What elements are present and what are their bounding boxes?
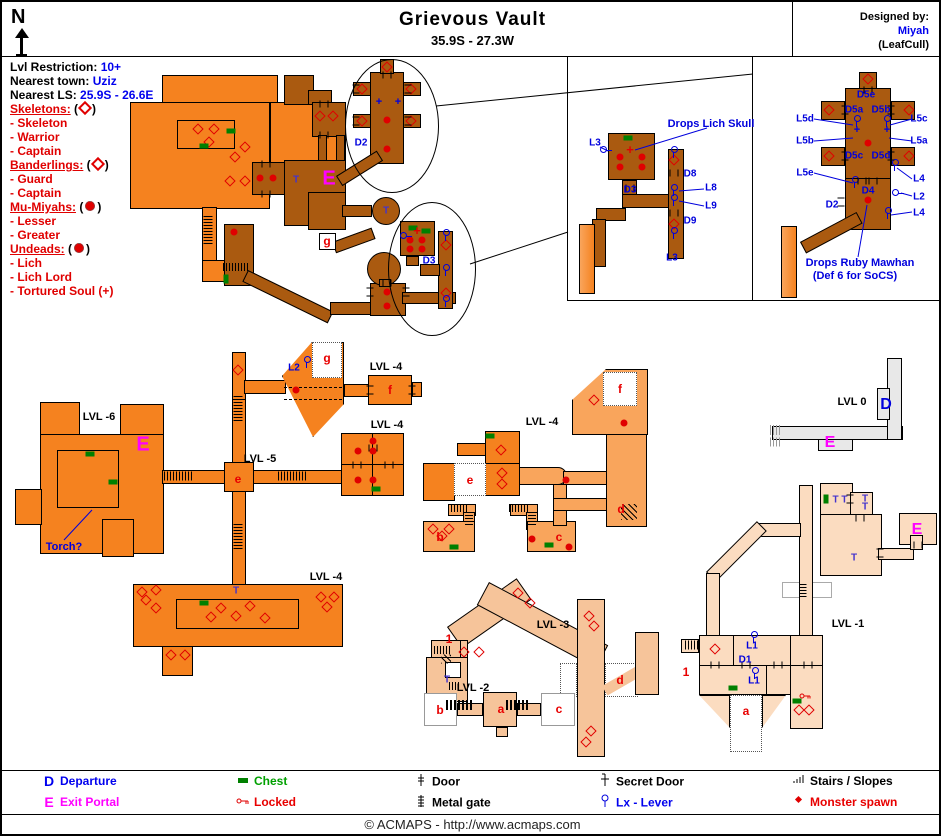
map-label: L5e xyxy=(796,168,813,179)
departure-symbol: D xyxy=(38,773,60,789)
map-label: L1 xyxy=(748,676,760,687)
lever-icon xyxy=(442,264,450,276)
map-label: L4 xyxy=(913,174,925,185)
map-label: D1 xyxy=(739,655,752,666)
map-label: T T xyxy=(833,495,848,506)
chest-icon xyxy=(824,495,829,504)
monster-spawn-icon xyxy=(407,246,414,253)
secret-door-icon xyxy=(594,773,616,790)
lever-cross-icon: + xyxy=(376,98,382,106)
map-label: b xyxy=(436,530,443,544)
map-label: E xyxy=(912,521,923,539)
stairs-icon xyxy=(528,511,536,525)
stairs-icon xyxy=(685,641,699,650)
slope-icon xyxy=(770,438,782,447)
lever-icon xyxy=(600,146,612,154)
legend-item-locked: Locked xyxy=(232,794,296,810)
map-label: E xyxy=(136,434,149,457)
legend-item-departure: DDeparture xyxy=(38,773,117,789)
monster-spawn-icon xyxy=(529,536,536,543)
chest-icon xyxy=(109,480,118,485)
map-label: D9 xyxy=(684,216,697,227)
monster-member: - Lich xyxy=(10,256,175,270)
lever-cross-icon: + xyxy=(854,126,860,134)
lever-icon xyxy=(670,227,678,239)
door-icon xyxy=(877,549,884,558)
map-label: D2 xyxy=(355,138,368,149)
chest-icon xyxy=(200,144,209,149)
monster-spawn-icon xyxy=(566,544,573,551)
monster-legend: Skeletons: ()- Skeleton- Warrior- Captai… xyxy=(10,102,175,298)
slope-icon xyxy=(441,655,451,664)
chest-icon xyxy=(729,686,738,691)
legend-item-monster-spawn: Monster spawn xyxy=(788,794,897,810)
map-label: D5c xyxy=(845,151,863,162)
monster-group-heading: Undeads: () xyxy=(10,242,175,256)
door-icon xyxy=(858,178,867,185)
map-label: D5a xyxy=(845,105,863,116)
map-label: d xyxy=(617,502,624,516)
monster-member: - Lesser xyxy=(10,214,175,228)
map-label: D5e xyxy=(857,90,875,101)
legend-label: Chest xyxy=(254,774,287,788)
monster-spawn-icon xyxy=(231,229,238,236)
map-label: L3 xyxy=(666,253,678,264)
stairs-icon xyxy=(509,504,529,512)
lever-icon xyxy=(892,189,904,197)
monster-spawn-icon xyxy=(384,303,391,310)
map-label: L5c xyxy=(910,114,927,125)
chest-icon xyxy=(486,434,495,439)
nearest-ls-row: Nearest LS: 25.9S - 26.6E xyxy=(10,88,175,102)
monster-spawn-icon xyxy=(384,117,391,124)
monster-spawn-icon xyxy=(617,154,624,161)
map-label: f xyxy=(388,383,392,397)
monster-spawn-icon xyxy=(293,387,300,394)
legend-item-secret-door: Secret Door xyxy=(594,773,684,789)
map-label: Drops Lich Skull xyxy=(668,118,755,130)
monster-member: - Captain xyxy=(10,186,175,200)
door-icon xyxy=(353,85,360,94)
monster-spawn-icon xyxy=(384,146,391,153)
door-icon xyxy=(385,462,394,469)
monster-spawn-icon xyxy=(419,246,426,253)
lever-icon xyxy=(303,356,311,368)
chest-icon xyxy=(232,774,254,788)
map-label: D5b xyxy=(872,105,891,116)
map-label: c xyxy=(556,702,563,716)
monster-spawn-icon xyxy=(617,164,624,171)
lever-icon xyxy=(442,295,450,307)
door-icon xyxy=(914,542,923,549)
map-page: N Grievous Vault 35.9S - 27.3W Designed … xyxy=(0,0,941,836)
door-icon xyxy=(262,161,271,168)
legend-label: Locked xyxy=(254,795,296,809)
monster-member: - Skeleton xyxy=(10,116,175,130)
door-icon xyxy=(856,515,865,522)
metal-gate-icon xyxy=(506,700,530,710)
door-icon xyxy=(405,85,412,94)
map-label: f xyxy=(618,382,622,396)
door-icon xyxy=(320,132,329,139)
door-icon xyxy=(353,117,360,126)
legend-item-door: Door xyxy=(410,773,460,789)
nearest-town-row: Nearest town: Uziz xyxy=(10,74,175,88)
monster-spawn-icon xyxy=(370,477,377,484)
chest-icon xyxy=(200,601,209,606)
map-label: LVL -1 xyxy=(832,618,865,630)
door-icon xyxy=(869,178,878,185)
map-label: 1 xyxy=(683,665,690,679)
map-label: LVL -4 xyxy=(310,571,343,583)
map-label: D4 xyxy=(862,186,875,197)
locked-icon xyxy=(799,687,811,694)
map-label: L9 xyxy=(705,201,717,212)
monster-spawn-icon xyxy=(355,477,362,484)
stairs-icon xyxy=(465,511,473,525)
chest-icon xyxy=(422,229,431,234)
map-label: D2 xyxy=(826,200,839,211)
legend-item-exit-portal: EExit Portal xyxy=(38,794,119,810)
monster-member: - Lich Lord xyxy=(10,270,175,284)
skeleton-spawn-icon xyxy=(91,157,105,171)
stairs-icon xyxy=(223,263,249,271)
monster-group-heading: Skeletons: () xyxy=(10,102,175,116)
lever-icon xyxy=(883,115,891,127)
legend-label: Stairs / Slopes xyxy=(810,774,893,788)
monster-spawn-icon xyxy=(788,794,810,809)
legend-item-stairs: Stairs / Slopes xyxy=(788,773,893,789)
map-label: T xyxy=(383,206,389,217)
chest-icon xyxy=(624,136,633,141)
tortured-soul-icon: + xyxy=(626,146,634,154)
map-label: LVL -4 xyxy=(526,416,559,428)
lever-icon xyxy=(884,207,892,219)
map-label: 1 xyxy=(446,632,453,646)
map-label: E xyxy=(322,168,335,191)
monster-group-heading: Mu-Miyahs: () xyxy=(10,200,175,214)
door-icon xyxy=(774,662,783,669)
stairs-icon xyxy=(164,472,192,481)
map-label: LVL -3 xyxy=(537,619,570,631)
map-label: T xyxy=(233,586,239,597)
stairs-icon xyxy=(204,216,213,244)
map-label: g xyxy=(323,351,330,365)
legend-label: Monster spawn xyxy=(810,795,897,809)
door-icon xyxy=(410,773,432,790)
map-label: g xyxy=(323,234,330,248)
lever-icon xyxy=(670,194,678,206)
door-icon xyxy=(320,101,329,108)
monster-member: - Tortured Soul (+) xyxy=(10,284,175,298)
stairs-icon xyxy=(800,583,807,597)
copyright-footer: © ACMAPS - http://www.acmaps.com xyxy=(2,817,941,832)
stairs-icon xyxy=(434,646,450,654)
map-label: T xyxy=(444,675,450,686)
map-label: D8 xyxy=(684,169,697,180)
monster-member: - Greater xyxy=(10,228,175,242)
legend-label: Secret Door xyxy=(616,775,684,789)
map-label: LVL 0 xyxy=(838,396,867,408)
monster-spawn-icon xyxy=(355,448,362,455)
map-label: L8 xyxy=(705,183,717,194)
chest-icon xyxy=(227,129,236,134)
monster-spawn-icon xyxy=(257,175,264,182)
exit-portal-symbol: E xyxy=(38,794,60,810)
map-label: L4 xyxy=(913,208,925,219)
chest-icon xyxy=(86,452,95,457)
monster-spawn-icon xyxy=(639,164,646,171)
lever-icon xyxy=(853,115,861,127)
map-label: d xyxy=(616,673,623,687)
chest-icon xyxy=(372,487,381,492)
map-label: LVL -5 xyxy=(244,453,277,465)
map-label: Drops Ruby Mawhan xyxy=(806,257,915,269)
door-icon xyxy=(804,662,813,669)
lvl-restriction-row: Lvl Restriction: 10+ xyxy=(10,60,175,74)
map-label: L5a xyxy=(910,136,927,147)
lever-icon xyxy=(670,146,678,158)
monster-spawn-icon xyxy=(865,197,872,204)
door-icon xyxy=(369,445,378,452)
legend-item-chest: Chest xyxy=(232,773,287,789)
lever-icon xyxy=(400,232,412,240)
door-icon xyxy=(670,210,679,217)
metal-gate-icon xyxy=(446,700,472,710)
monster-member: - Guard xyxy=(10,172,175,186)
skeleton-spawn-icon xyxy=(78,101,92,115)
map-label: LVL -2 xyxy=(457,682,490,694)
tortured-soul-icon: + xyxy=(413,227,421,235)
door-icon xyxy=(383,72,392,79)
map-label: L2 xyxy=(288,363,300,374)
map-label: e xyxy=(235,472,242,486)
chest-icon xyxy=(545,543,554,548)
door-icon xyxy=(711,662,720,669)
monster-group-heading: Banderlings: () xyxy=(10,158,175,172)
lever-icon xyxy=(442,229,450,241)
map-label: e xyxy=(467,473,474,487)
map-label: a xyxy=(498,702,505,716)
map-label: L5b xyxy=(796,136,814,147)
monster-spawn-icon xyxy=(639,154,646,161)
monster-spawn-icon xyxy=(370,438,377,445)
map-label: T xyxy=(862,502,868,513)
locked-icon xyxy=(232,795,254,809)
stairs-icon xyxy=(234,395,243,421)
monster-member: - Warrior xyxy=(10,130,175,144)
monster-spawn-icon xyxy=(563,477,570,484)
map-label: E xyxy=(825,434,836,452)
door-icon xyxy=(847,495,854,504)
stairs-icon xyxy=(234,523,243,549)
map-label: L1 xyxy=(746,641,758,652)
legend-label: Departure xyxy=(60,774,117,788)
map-label: T xyxy=(293,175,299,186)
monster-spawn-icon xyxy=(85,201,95,211)
map-label: L2 xyxy=(913,192,925,203)
map-label: L3 xyxy=(589,138,601,149)
map-label: LVL -4 xyxy=(371,419,404,431)
monster-spawn-icon xyxy=(621,420,628,427)
legend-item-metal-gate: Metal gate xyxy=(410,794,491,810)
map-label: D5d xyxy=(872,151,891,162)
map-label: c xyxy=(556,530,563,544)
map-label: a xyxy=(743,704,750,718)
door-icon xyxy=(262,191,271,198)
lever-icon xyxy=(891,159,899,171)
map-label: T xyxy=(851,553,857,564)
map-label: LVL -6 xyxy=(83,411,116,423)
monster-spawn-icon xyxy=(74,243,84,253)
monster-spawn-icon xyxy=(865,140,872,147)
chest-icon xyxy=(450,545,459,550)
door-icon xyxy=(405,117,412,126)
legend-item-lever: Lx - Lever xyxy=(594,794,673,810)
door-icon xyxy=(353,462,362,469)
lever-icon xyxy=(594,794,616,811)
door-icon xyxy=(367,288,374,297)
chest-icon xyxy=(224,275,229,284)
door-icon xyxy=(367,386,374,395)
map-label: L5d xyxy=(796,114,814,125)
slope-icon xyxy=(770,425,782,435)
map-label: Torch? xyxy=(46,541,82,553)
stairs-icon xyxy=(278,472,306,481)
lever-cross-icon: + xyxy=(395,98,401,106)
door-icon xyxy=(403,288,410,297)
stairs-icon xyxy=(788,773,810,788)
map-label: D3 xyxy=(624,185,637,196)
legend-label: Door xyxy=(432,775,460,789)
legend-label: Exit Portal xyxy=(60,795,119,809)
map-label: b xyxy=(436,703,443,717)
door-icon xyxy=(383,280,392,287)
legend-label: Lx - Lever xyxy=(616,796,673,810)
info-panel: Lvl Restriction: 10+ Nearest town: Uziz … xyxy=(10,60,175,298)
map-label: (Def 6 for SoCS) xyxy=(813,270,897,282)
monster-member: - Captain xyxy=(10,144,175,158)
map-label: LVL -4 xyxy=(370,361,403,373)
lever-cross-icon: + xyxy=(884,126,890,134)
map-label: D xyxy=(880,396,892,414)
legend-label: Metal gate xyxy=(432,796,491,810)
door-icon xyxy=(670,170,679,177)
map-label: D3 xyxy=(423,256,436,267)
monster-spawn-icon xyxy=(270,175,277,182)
door-icon xyxy=(409,386,416,395)
monster-spawn-icon xyxy=(384,289,391,296)
metal-gate-icon xyxy=(410,794,432,811)
